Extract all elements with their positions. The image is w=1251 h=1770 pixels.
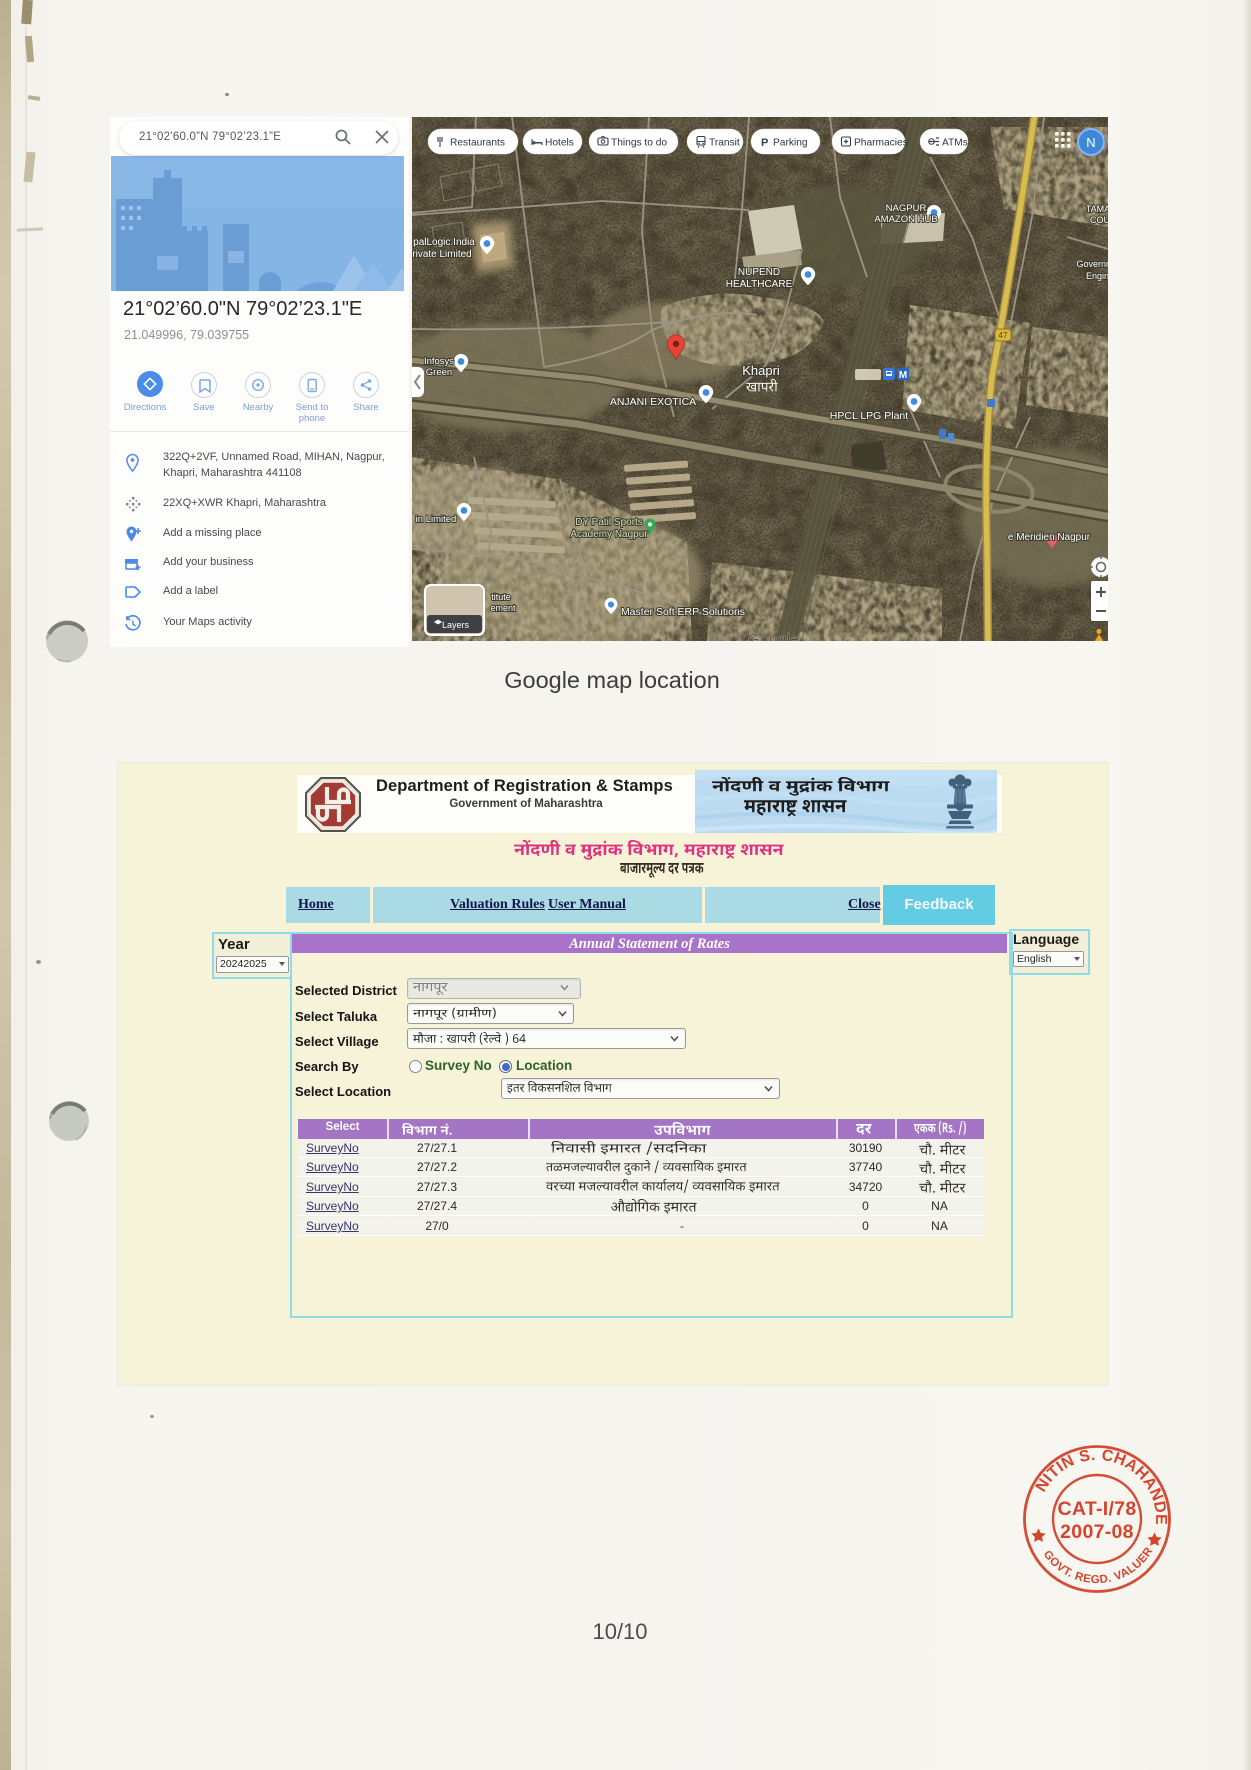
svg-text:Master Soft ERP Solutions: Master Soft ERP Solutions — [621, 606, 745, 618]
svg-text:Pharmacies: Pharmacies — [854, 138, 908, 149]
svg-text:Governm: Governm — [1076, 259, 1108, 269]
svg-text:Hotels: Hotels — [545, 138, 574, 149]
svg-text:P: P — [761, 137, 768, 149]
svg-text:Khapri: Khapri — [742, 363, 780, 378]
svg-text:2007-08: 2007-08 — [1060, 1521, 1134, 1543]
svg-text:Restaurants: Restaurants — [450, 138, 505, 149]
svg-text:HEALTHCARE: HEALTHCARE — [726, 279, 793, 290]
svg-text:COU: COU — [1090, 215, 1108, 225]
svg-text:in Limited: in Limited — [416, 514, 457, 525]
svg-text:ANJANI EXOTICA: ANJANI EXOTICA — [610, 396, 696, 408]
svg-text:TAMA: TAMA — [1086, 204, 1108, 214]
svg-text:ement: ement — [490, 603, 516, 613]
svg-text:palLogic India: palLogic India — [413, 237, 475, 248]
svg-text:rivate Limited: rivate Limited — [412, 249, 471, 260]
svg-text:CAT-I/78: CAT-I/78 — [1058, 1498, 1137, 1520]
svg-text:Things to do: Things to do — [611, 138, 667, 149]
svg-text:DY Patil Sports: DY Patil Sports — [575, 517, 643, 528]
svg-text:N: N — [1086, 135, 1095, 150]
svg-text:ATMs: ATMs — [942, 138, 968, 149]
svg-text:NAGPUR: NAGPUR — [886, 203, 927, 214]
svg-text:HPCL LPG Plant: HPCL LPG Plant — [830, 410, 908, 422]
svg-text:NUPEND: NUPEND — [738, 267, 780, 278]
svg-text:Transit: Transit — [709, 138, 740, 149]
svg-text:titute: titute — [491, 592, 511, 602]
svg-text:e Meridien Nagpur: e Meridien Nagpur — [1008, 532, 1091, 543]
svg-text:Green: Green — [426, 367, 452, 378]
svg-text:Academy Nagpur: Academy Nagpur — [570, 529, 648, 540]
svg-text:Engine: Engine — [1086, 271, 1108, 281]
svg-text:M: M — [899, 370, 907, 381]
svg-text:AMAZON HUB: AMAZON HUB — [874, 214, 937, 225]
svg-text:Google: Google — [748, 631, 799, 641]
svg-text:Infosys: Infosys — [424, 356, 454, 367]
svg-text:Layers: Layers — [442, 620, 470, 630]
svg-text:Parking: Parking — [773, 138, 808, 149]
